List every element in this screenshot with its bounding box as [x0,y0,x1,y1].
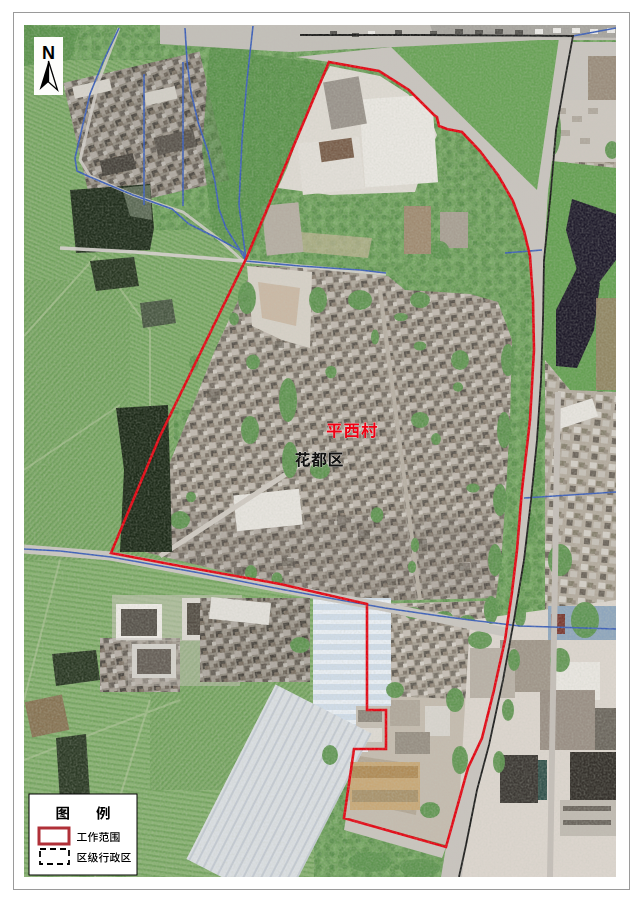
svg-text:N: N [42,43,55,63]
